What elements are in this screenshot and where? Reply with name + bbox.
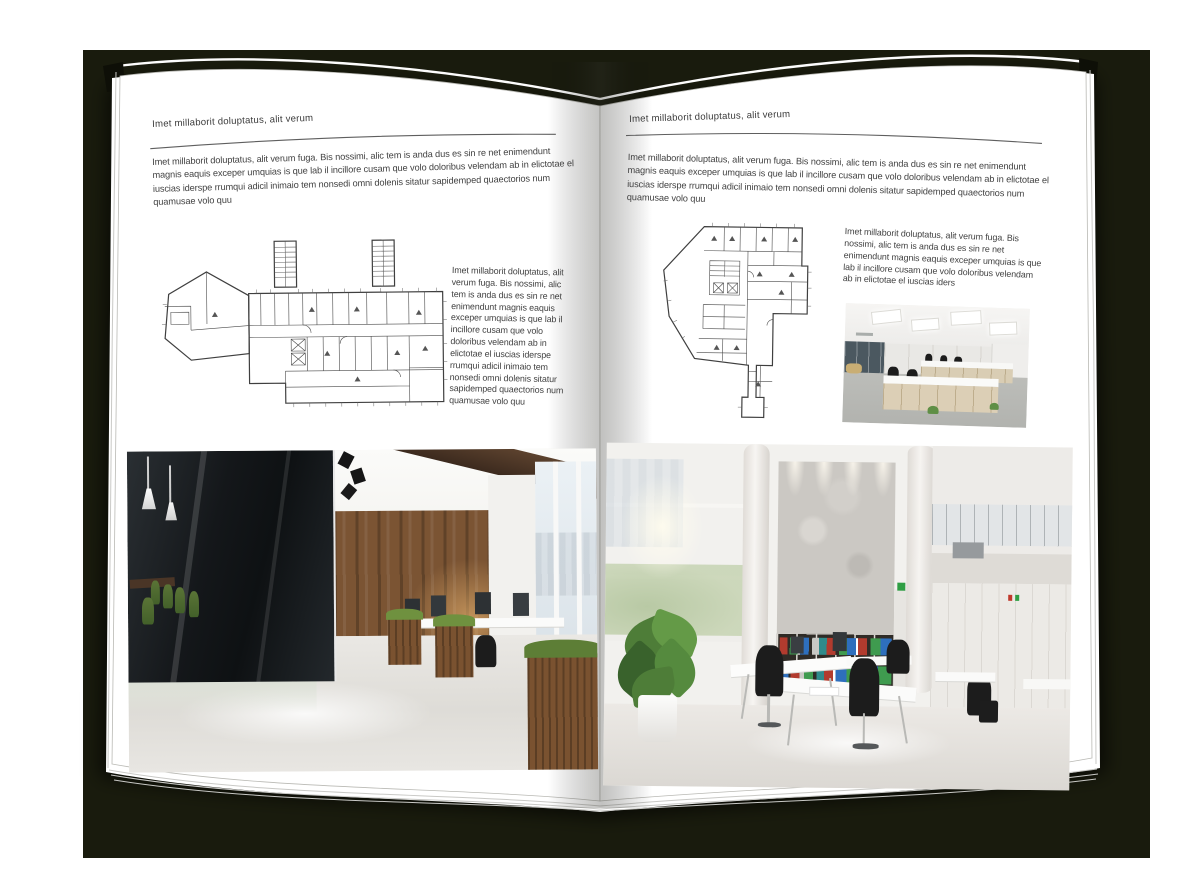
plan-symbols [212,306,429,383]
right-side-column: Imet millaborit doluptatus, alit verum f… [843,226,1043,293]
planter-grass [525,639,599,657]
downlight-glow [814,462,835,500]
city-view [535,532,596,596]
outer-walls [164,240,444,405]
ceiling-vent [856,332,873,336]
monitor [430,595,445,616]
glass-reflection [257,450,292,681]
photo-bright-white-office [603,443,1073,791]
monitor [475,592,491,615]
downlight-glow [843,462,864,500]
left-side-column: Imet millaborit doluptatus, alit verum f… [449,265,572,410]
plan-symbols [709,236,798,387]
mezzanine [932,446,1073,585]
outer-walls [662,226,809,418]
planter-grass [433,615,475,627]
room-partitions [164,270,443,405]
plant [927,406,938,415]
pendant-lamp [163,502,179,521]
office-chair [475,635,496,667]
photo-dark-wood-office [127,448,598,772]
right-header-rule [626,130,1042,147]
window-ticks [662,222,813,408]
concrete-wall [777,462,895,635]
desk-top [935,672,996,682]
lamp-cord [147,456,149,491]
light-panel [950,310,982,326]
office-chair [849,658,880,717]
floor-plan-right [650,220,813,427]
photo-workstations-small [842,303,1030,428]
chair-post [862,713,865,747]
monitor [791,637,803,654]
wood-planter-large [527,654,598,770]
plant-pot [638,695,677,742]
lounge-sofa [846,363,863,374]
green-chair [163,584,173,608]
waste-bin [979,700,998,722]
safety-sign-red [1008,595,1012,601]
lamp-cord [169,465,171,504]
chair-base [853,744,879,749]
monitor [833,632,847,651]
wood-planter [388,616,421,664]
office-chair [886,639,910,674]
exit-sign [897,583,905,591]
sun-glare [612,465,711,589]
monitor [512,593,528,616]
green-chair [175,588,185,613]
wood-planter [435,623,473,678]
glass-reflection [170,451,207,682]
office-chair [756,645,784,697]
stair-hatching [274,240,394,287]
chair-base [758,722,781,727]
potted-plant [613,614,703,745]
safety-sign-green [1015,595,1019,601]
green-chair [189,591,199,618]
light-panel [911,318,940,332]
window-ticks [162,287,448,408]
stair-hatching [710,261,740,277]
brochure-mockup-canvas: Imet millaborit doluptatus, alit verum I… [0,0,1200,891]
plant [990,403,999,410]
railing [932,504,1072,547]
floor-plan-left [156,231,448,421]
vent-grille [953,542,984,559]
glass-meeting-room [127,450,337,683]
planter-grass [386,608,424,619]
downlight-glow [872,462,893,500]
pendant-lamp [140,488,159,509]
cabinet-front [883,383,998,413]
window-mullion [576,461,582,647]
wall-cabinets [930,583,1071,708]
downlight-glow [784,462,805,500]
desk-top [1024,678,1071,689]
papers [809,687,839,696]
green-chair [142,597,153,625]
chair-post [767,695,770,726]
room-partitions [696,227,808,399]
right-intro-paragraph: Imet millaborit doluptatus, alit verum f… [627,151,1052,215]
light-panel [988,322,1016,336]
